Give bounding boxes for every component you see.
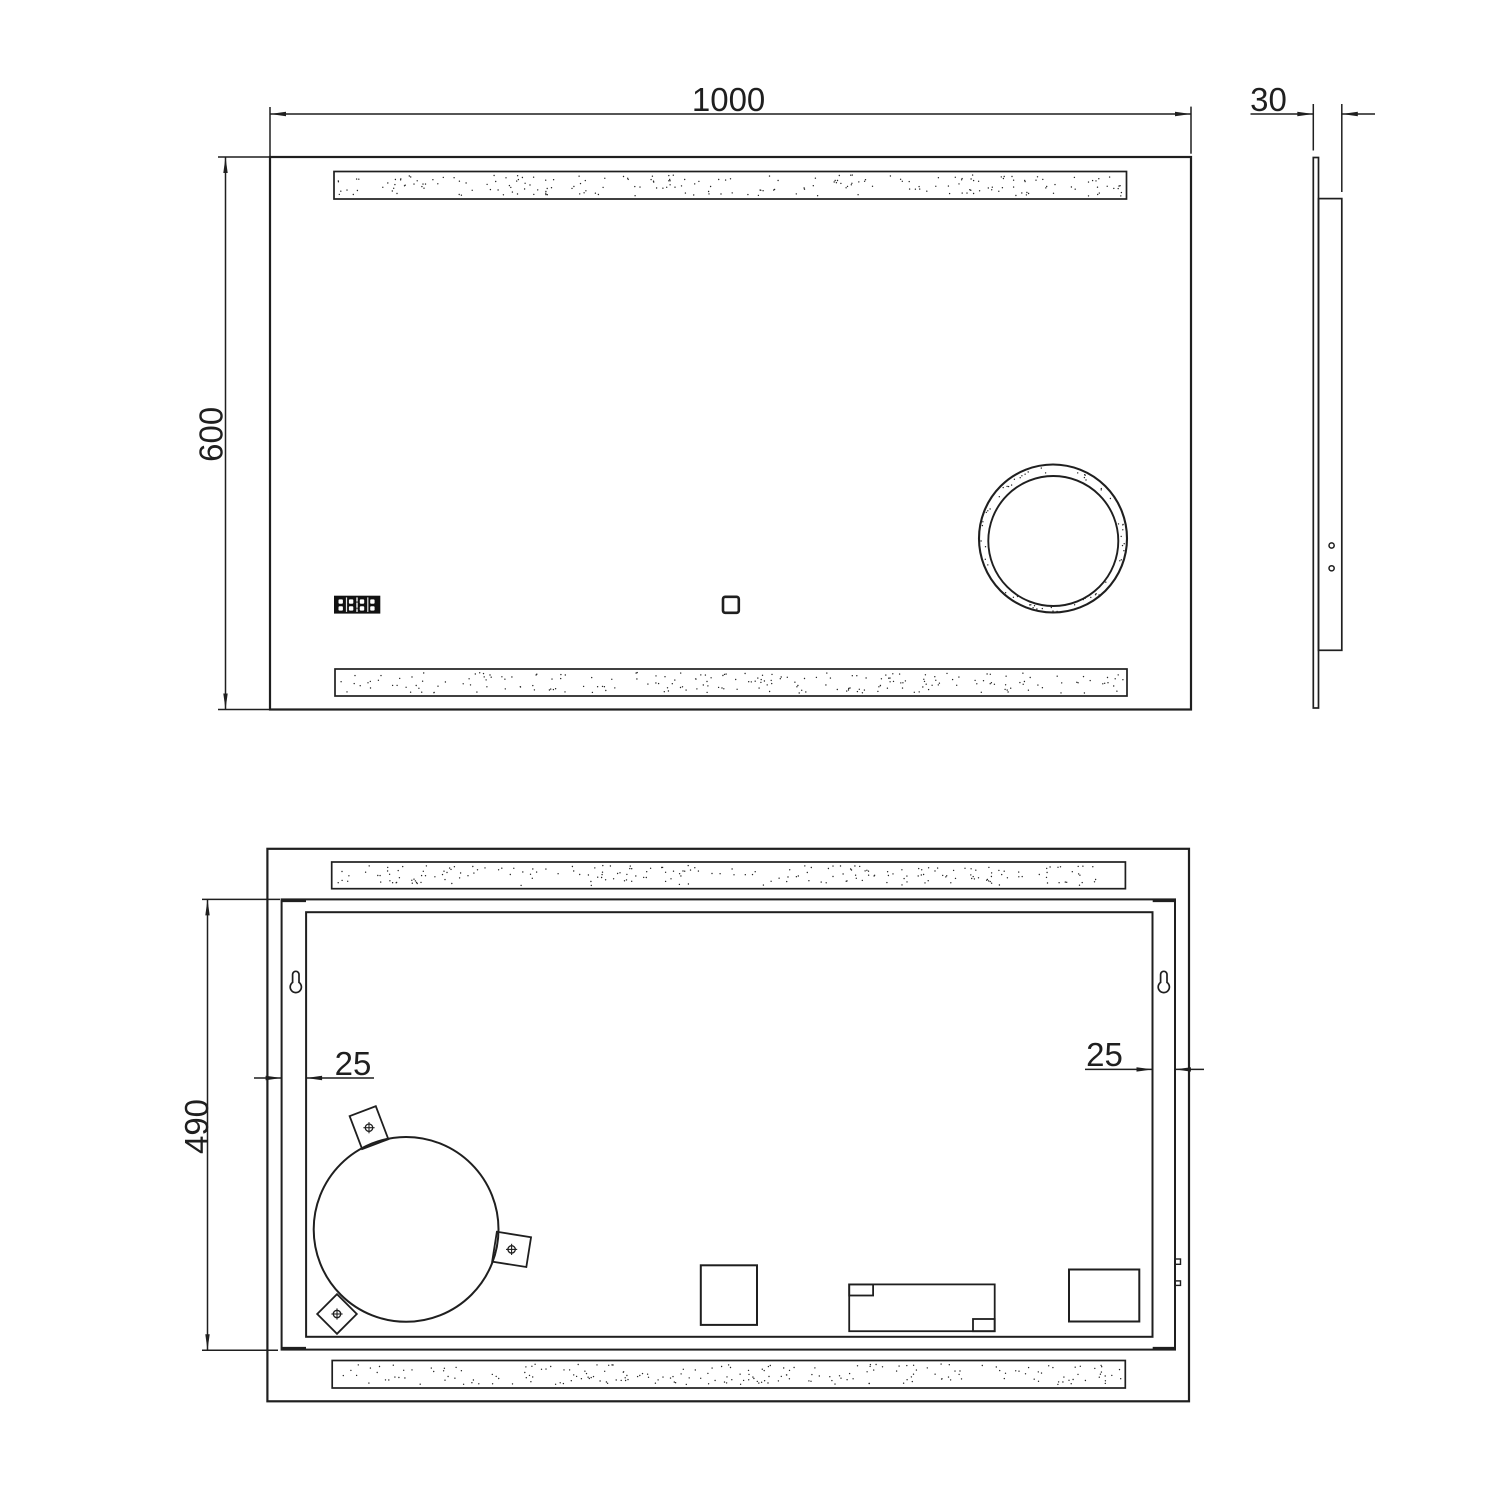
svg-text:600: 600 bbox=[193, 407, 230, 462]
svg-text:1000: 1000 bbox=[692, 81, 765, 118]
svg-text:490: 490 bbox=[178, 1099, 215, 1154]
svg-text:25: 25 bbox=[335, 1045, 372, 1082]
svg-text:25: 25 bbox=[1086, 1036, 1123, 1073]
svg-text:30: 30 bbox=[1250, 81, 1287, 118]
